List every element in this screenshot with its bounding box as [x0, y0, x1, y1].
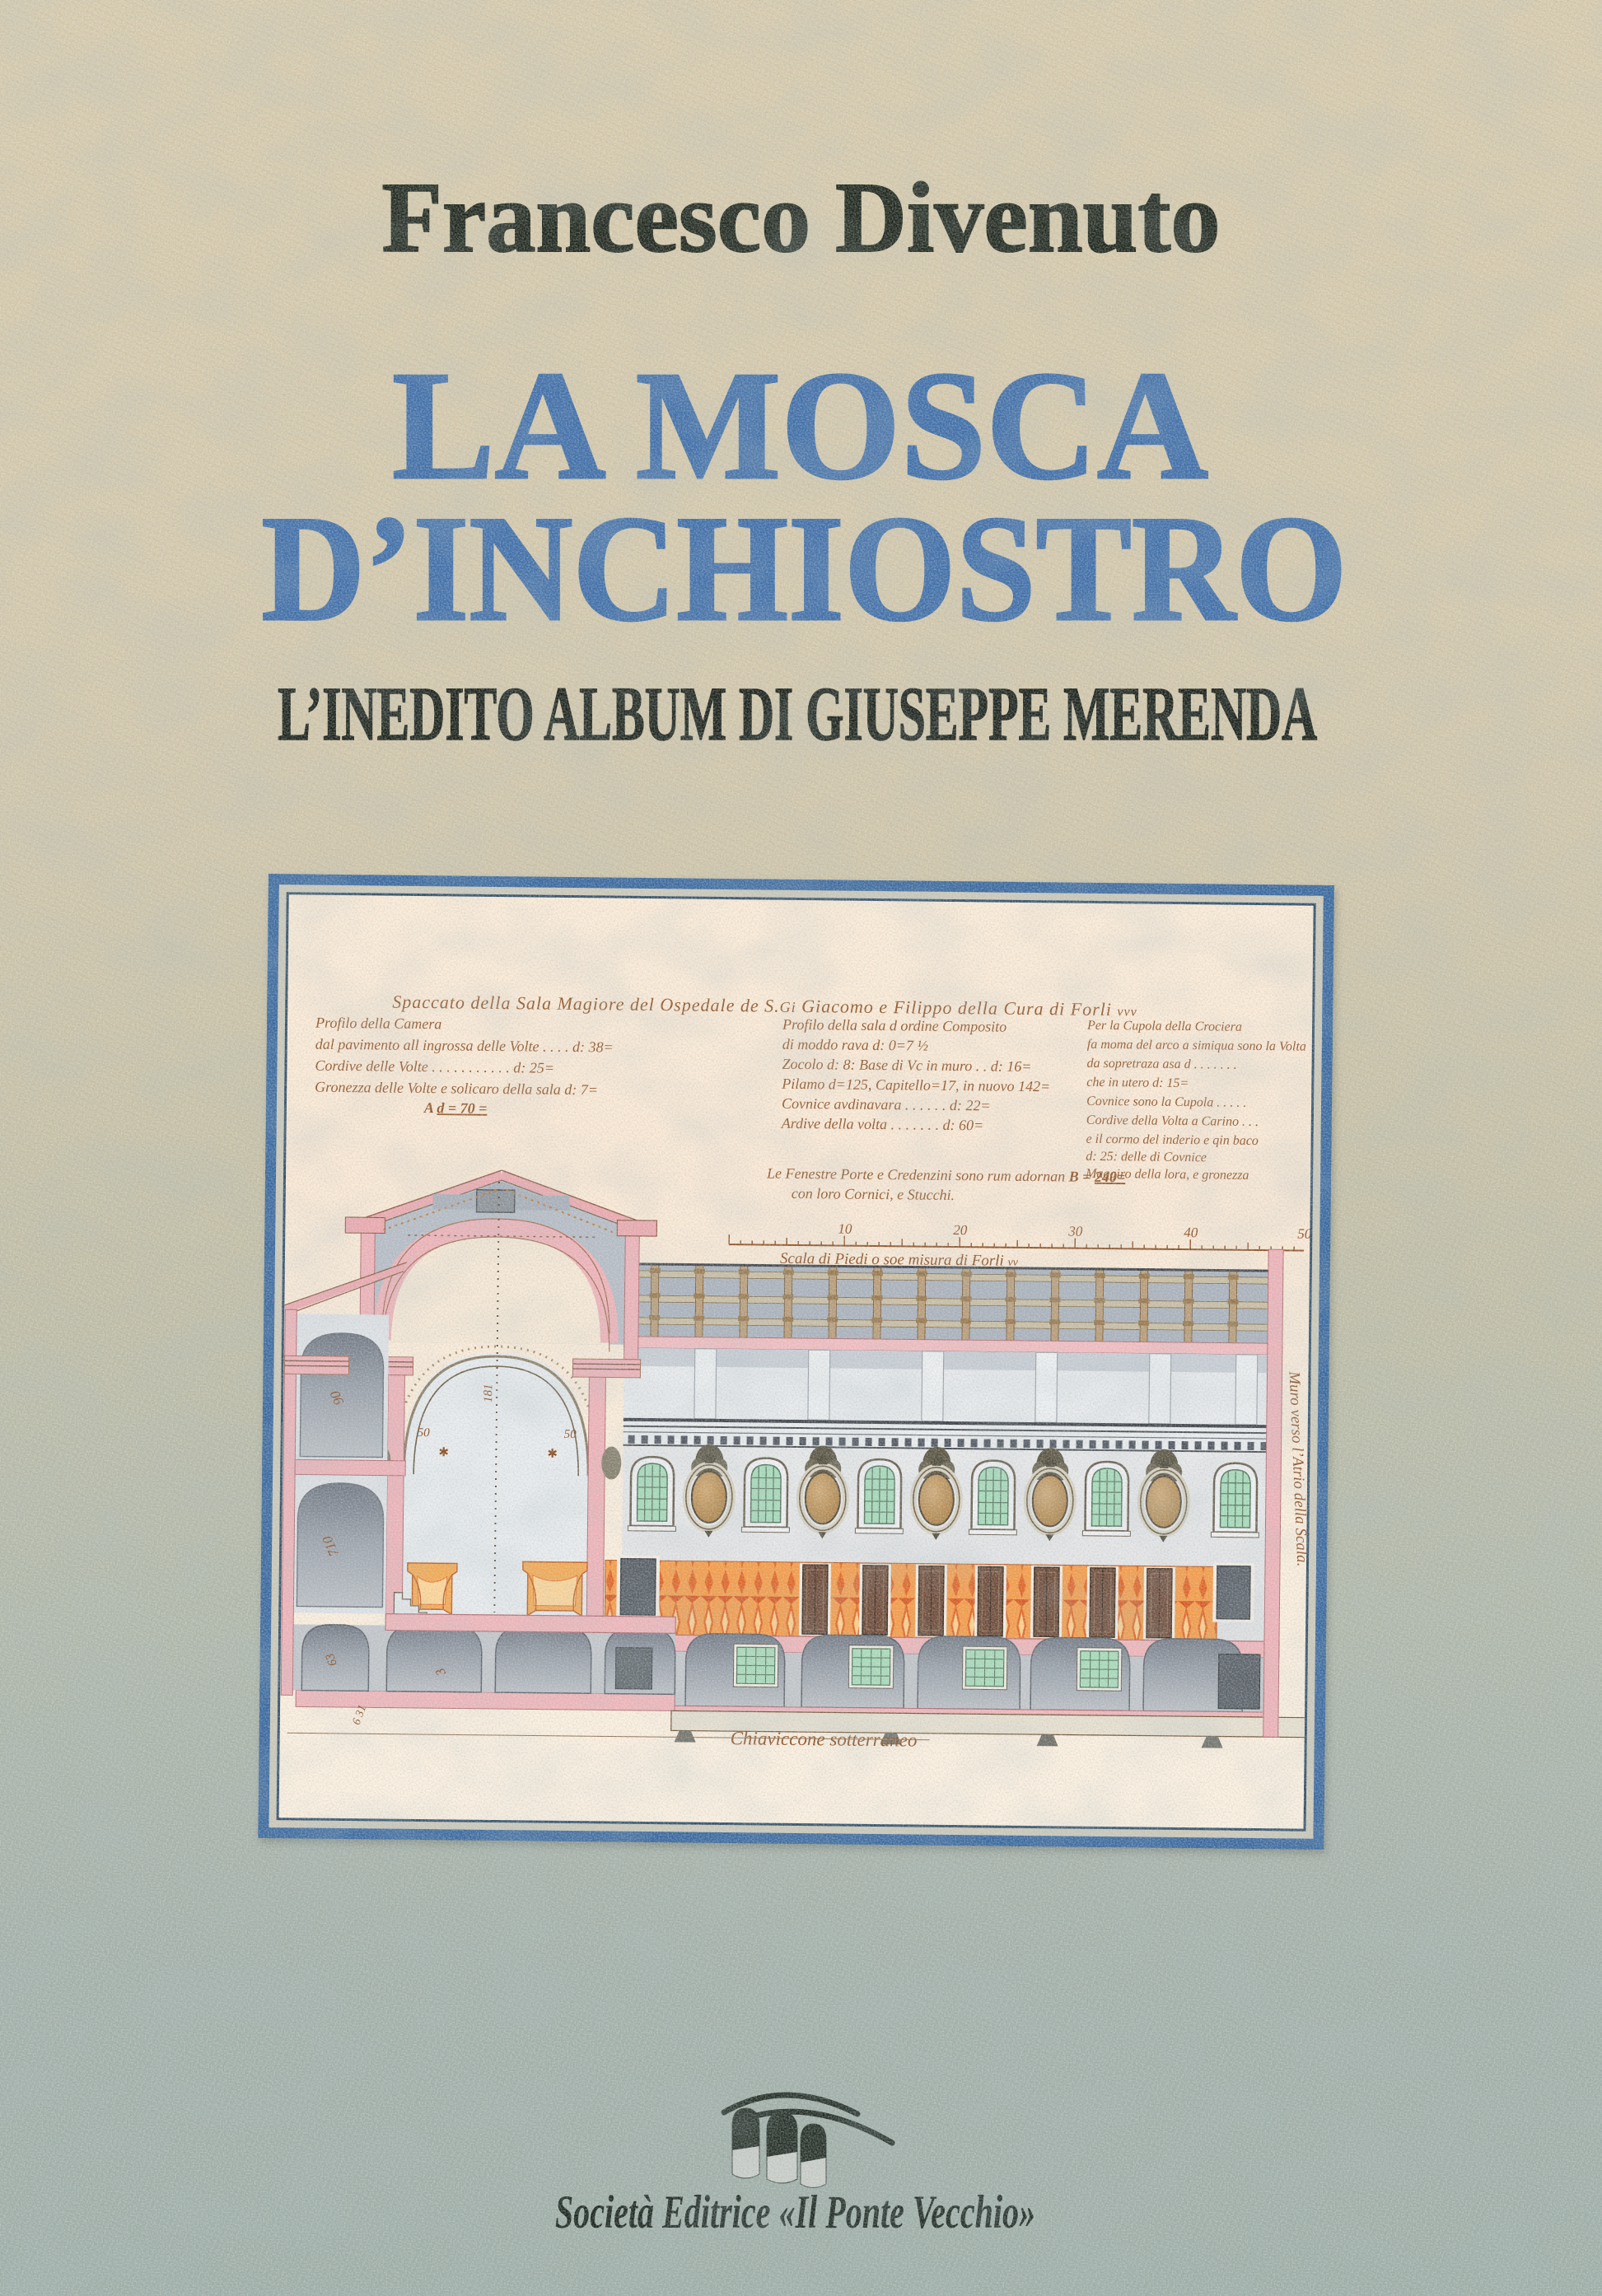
svg-text:dal pavimento all ingrossa del: dal pavimento all ingrossa delle Volte .… — [315, 1036, 614, 1056]
svg-text:50: 50 — [564, 1428, 577, 1441]
svg-text:che in utero d: 15=: che in utero d: 15= — [1086, 1076, 1189, 1090]
svg-text:Cordive della Volta a Carino .: Cordive della Volta a Carino . . . — [1086, 1113, 1259, 1129]
svg-text:Profilo della Camera: Profilo della Camera — [315, 1015, 442, 1033]
svg-text:Cordive delle Volte . . . . .: Cordive delle Volte . . . . . . . . . . … — [315, 1057, 554, 1076]
svg-text:Gronezza delle Volte e solicar: Gronezza delle Volte e solicaro della sa… — [315, 1079, 598, 1099]
svg-text:Ardive della volta . . . . . .: Ardive della volta . . . . . . . d: 60= — [781, 1115, 984, 1134]
svg-text:Covnice sono la Cupola . . .: Covnice sono la Cupola . . . . . — [1086, 1094, 1246, 1110]
svg-text:A d = 70 =: A d = 70 = — [423, 1099, 488, 1117]
svg-text:da sopretraza asa d . . . . .: da sopretraza asa d . . . . . . . — [1086, 1057, 1236, 1072]
svg-text:d: 25: delle di Covnice: d: 25: delle di Covnice — [1086, 1150, 1207, 1165]
svg-text:Pilamo d=125, Capitello=17, in: Pilamo d=125, Capitello=17, in nuovo 142… — [781, 1076, 1050, 1095]
svg-text:Profilo della sala d ordine Co: Profilo della sala d ordine Composito — [782, 1016, 1007, 1035]
svg-text:Le Fenestre Porte e Credenzini: Le Fenestre Porte e Credenzini sono rum … — [766, 1165, 1125, 1186]
svg-text:Zocolo d: 8: Base di Vc in mur: Zocolo d: 8: Base di Vc in muro . . d: 1… — [782, 1056, 1031, 1075]
svg-text:Covnice avdinavara . . . . . .: Covnice avdinavara . . . . . . d: 22= — [782, 1095, 991, 1114]
svg-text:✱: ✱ — [547, 1448, 558, 1461]
svg-text:40: 40 — [1184, 1225, 1198, 1240]
svg-text:Per la Cupola della Crociera: Per la Cupola della Crociera — [1086, 1019, 1242, 1034]
svg-text:50: 50 — [418, 1426, 431, 1440]
svg-text:10: 10 — [838, 1221, 852, 1237]
svg-text:✱: ✱ — [438, 1446, 449, 1459]
svg-text:di moddo rava d: 0=7 ½: di moddo rava d: 0=7 ½ — [782, 1036, 929, 1054]
svg-text:e il cormo del inderio e qin b: e il cormo del inderio e qin baco — [1086, 1132, 1258, 1148]
svg-text:fa moma del arco a simiqua son: fa moma del arco a simiqua sono la Volta — [1087, 1038, 1306, 1054]
svg-text:20: 20 — [953, 1222, 968, 1238]
svg-text:181: 181 — [482, 1384, 495, 1402]
svg-text:Spaccato della Sala Magiore de: Spaccato della Sala Magiore del Ospedale… — [392, 992, 1137, 1020]
svg-text:30: 30 — [1067, 1224, 1083, 1239]
svg-text:con loro Cornici, e Stucchi.: con loro Cornici, e Stucchi. — [792, 1185, 955, 1203]
